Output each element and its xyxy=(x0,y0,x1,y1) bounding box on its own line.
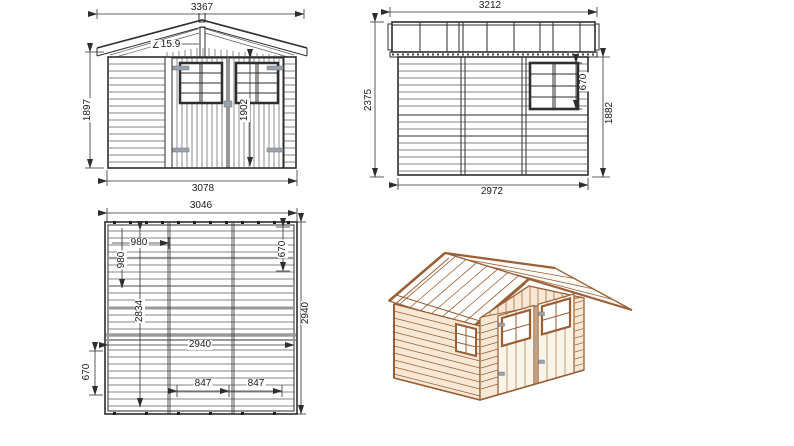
front-width-top-dim: 3367 xyxy=(190,3,214,13)
front-door-height-dim: 1902 xyxy=(240,98,250,122)
side-window-height-dim: 670 xyxy=(579,73,589,92)
front-elevation-drawing xyxy=(70,0,330,200)
front-roof-angle-dim: ∠15.9 xyxy=(151,40,182,50)
drawing-sheet: 3367 ∠15.9 1897 1902 3078 3212 2375 670 … xyxy=(0,0,794,446)
front-height-left-dim: 1897 xyxy=(83,98,93,122)
side-height-left-dim: 2375 xyxy=(364,88,374,112)
side-elevation-drawing xyxy=(345,0,635,200)
front-width-bottom-dim: 3078 xyxy=(191,184,215,194)
plan-offset-left-v-dim: 980 xyxy=(117,251,127,270)
side-width-bottom-dim: 2972 xyxy=(480,187,504,197)
plan-inner-width-dim: 2940 xyxy=(188,340,212,350)
angle-icon: ∠ xyxy=(152,41,160,50)
floor-plan-drawing xyxy=(75,198,330,446)
plan-inner-depth-dim: 2834 xyxy=(135,299,145,323)
plan-depth-right-dim: 2940 xyxy=(301,301,311,325)
plan-window-offset-dim: 670 xyxy=(278,240,288,259)
plan-offset-bottom-dim: 670 xyxy=(82,363,92,382)
plan-door-seg2-dim: 847 xyxy=(247,379,266,389)
plan-door-seg1-dim: 847 xyxy=(194,379,213,389)
side-wall-height-dim: 1882 xyxy=(605,101,615,125)
side-width-top-dim: 3212 xyxy=(478,1,502,11)
plan-width-top-dim: 3046 xyxy=(189,201,213,211)
front-roof-angle-value: 15.9 xyxy=(161,40,180,50)
plan-offset-left-h-dim: 980 xyxy=(130,238,149,248)
iso-view-drawing xyxy=(370,228,670,446)
